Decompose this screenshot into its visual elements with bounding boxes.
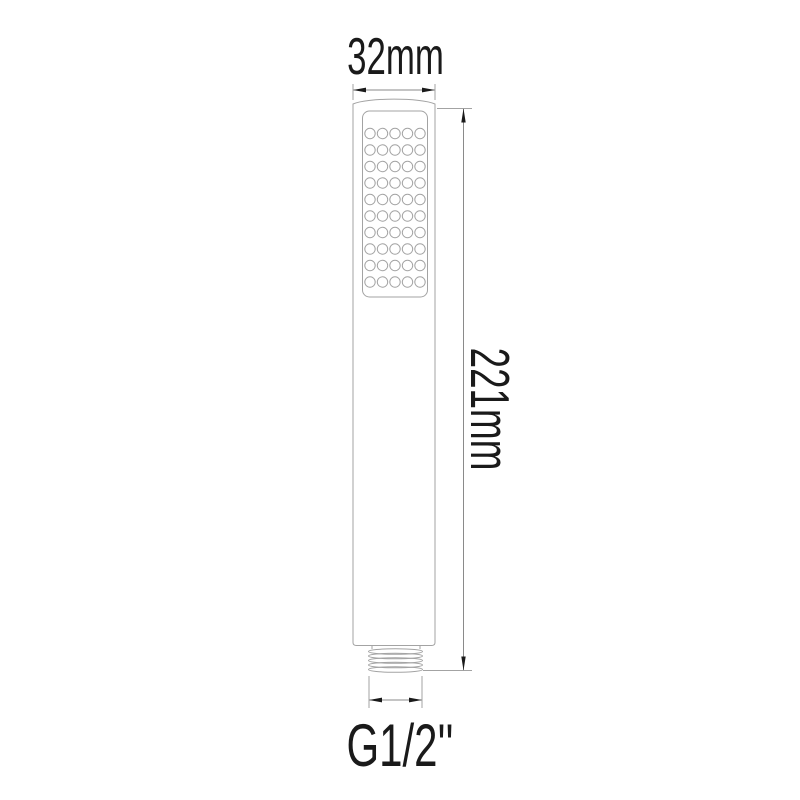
- width-arrow-right: [422, 88, 435, 93]
- spray-hole: [377, 161, 387, 171]
- height-dimension-label: 221mm: [459, 348, 520, 471]
- spray-hole: [402, 194, 412, 204]
- spray-hole: [415, 161, 425, 171]
- dimension-width: 32mm: [347, 28, 444, 100]
- diagram-canvas: 32mm 221mm G1/2'': [0, 0, 800, 800]
- width-dimension-label: 32mm: [347, 28, 444, 86]
- spray-hole: [415, 244, 425, 254]
- spray-hole: [377, 244, 387, 254]
- spray-hole: [390, 178, 400, 188]
- spray-hole: [377, 128, 387, 138]
- spray-hole: [415, 227, 425, 237]
- shower-wand: [353, 99, 435, 672]
- spray-hole: [402, 227, 412, 237]
- spray-hole: [377, 277, 387, 287]
- spray-hole: [377, 178, 387, 188]
- spray-hole: [390, 194, 400, 204]
- spray-hole: [415, 128, 425, 138]
- spray-hole: [415, 178, 425, 188]
- technical-drawing: 32mm 221mm G1/2'': [0, 0, 800, 800]
- spray-hole: [390, 211, 400, 221]
- thread-size-label: G1/2'': [346, 712, 453, 779]
- spray-hole: [365, 227, 375, 237]
- spray-hole: [415, 211, 425, 221]
- spray-hole: [365, 194, 375, 204]
- thread-arrow-right: [409, 698, 422, 703]
- spray-hole: [365, 161, 375, 171]
- spray-hole: [377, 227, 387, 237]
- thread-connector: [369, 646, 423, 673]
- height-arrow-down: [461, 657, 465, 671]
- spray-holes: [365, 128, 425, 287]
- spray-hole: [402, 145, 412, 155]
- dimension-height: 221mm: [423, 109, 520, 671]
- spray-hole: [402, 161, 412, 171]
- spray-hole: [402, 244, 412, 254]
- spray-hole: [402, 128, 412, 138]
- spray-hole: [402, 277, 412, 287]
- spray-hole: [390, 161, 400, 171]
- spray-hole: [415, 260, 425, 270]
- spray-hole: [390, 260, 400, 270]
- spray-hole: [390, 244, 400, 254]
- spray-hole: [377, 145, 387, 155]
- spray-hole: [402, 178, 412, 188]
- spray-hole: [365, 178, 375, 188]
- spray-hole: [377, 194, 387, 204]
- thread-arrow-left: [369, 698, 382, 703]
- dimension-thread: G1/2'': [346, 676, 453, 779]
- width-arrow-left: [353, 88, 366, 93]
- spray-hole: [402, 211, 412, 221]
- spray-hole: [390, 128, 400, 138]
- spray-hole: [377, 260, 387, 270]
- spray-hole: [365, 145, 375, 155]
- spray-hole: [415, 194, 425, 204]
- spray-hole: [365, 128, 375, 138]
- spray-hole: [365, 244, 375, 254]
- spray-hole: [402, 260, 412, 270]
- spray-hole: [390, 227, 400, 237]
- spray-hole: [415, 277, 425, 287]
- spray-hole: [365, 277, 375, 287]
- height-arrow-up: [461, 109, 465, 123]
- spray-hole: [390, 145, 400, 155]
- spray-hole: [415, 145, 425, 155]
- spray-hole: [365, 211, 375, 221]
- spray-hole: [390, 277, 400, 287]
- spray-hole: [377, 211, 387, 221]
- spray-hole: [365, 260, 375, 270]
